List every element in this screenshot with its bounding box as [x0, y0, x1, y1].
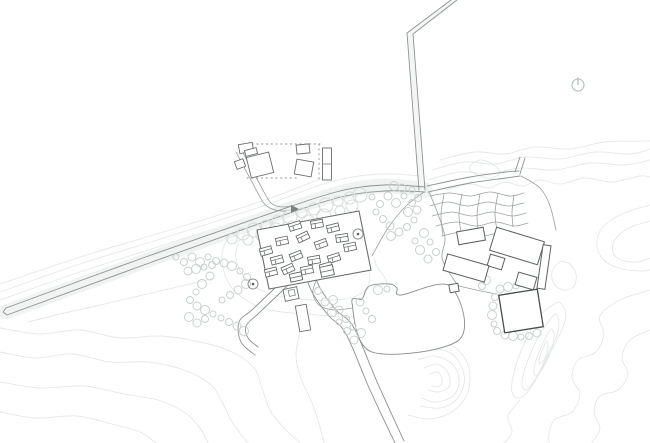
contour-line: [445, 176, 650, 190]
terrace-line: [495, 193, 498, 231]
entrance-structures: [283, 287, 311, 332]
tree-icon: [193, 289, 199, 295]
tree-icon: [188, 253, 196, 261]
contour-line: [592, 330, 650, 443]
tree-icon: [196, 258, 205, 267]
cluster-building-outline: [246, 152, 273, 178]
tree-icon: [533, 329, 541, 337]
plaza-tree-marker-dot: [252, 283, 255, 286]
plaza-annex-building: [320, 265, 335, 277]
tree-icon: [210, 311, 216, 317]
complex-building: [449, 283, 459, 292]
tree-icon: [315, 288, 322, 295]
tree-icon: [321, 298, 329, 306]
tree-icon: [350, 336, 358, 344]
tree-icon: [433, 249, 440, 256]
tree-icon: [213, 258, 220, 265]
tree-icon: [404, 208, 413, 217]
tree-icon: [420, 229, 429, 238]
tree-icon: [209, 262, 216, 269]
contour-line: [0, 352, 248, 443]
cluster-building-outline: [294, 159, 313, 177]
tree-icon: [509, 332, 518, 341]
contour-line: [612, 221, 650, 262]
footpath: [372, 192, 424, 256]
footpath: [521, 176, 556, 230]
complex-building-outline: [449, 283, 459, 292]
cluster-building-outline: [296, 144, 310, 154]
cluster-building: [246, 152, 273, 178]
contour-line: [404, 342, 470, 419]
tree-icon: [518, 334, 524, 340]
contour-layer: [0, 141, 650, 443]
tree-icon: [386, 222, 394, 230]
terrace-line: [512, 195, 514, 227]
contour-line: [432, 149, 650, 170]
tree-icon: [218, 315, 224, 321]
tree-icon: [220, 259, 228, 267]
entrance-kiosk-outline: [283, 287, 299, 302]
complex-building: [443, 254, 489, 282]
tree-icon: [192, 265, 201, 274]
complex-building-outline: [487, 254, 505, 270]
contour-line: [424, 364, 450, 392]
tree-icon: [369, 194, 375, 200]
contour-line: [418, 356, 459, 402]
tree-icon: [496, 285, 504, 293]
contour-line: [548, 290, 650, 443]
pavilion-building: [310, 219, 323, 228]
cluster-building: [296, 144, 310, 154]
tree-icon: [412, 238, 418, 244]
site-plan: [0, 0, 650, 443]
contour-line: [0, 412, 156, 443]
terrace-line: [436, 222, 528, 226]
tree-icon: [240, 327, 249, 336]
tree-icon: [187, 297, 194, 304]
contour-line: [469, 160, 500, 178]
tree-icon: [395, 228, 403, 236]
contour-line: [504, 400, 520, 443]
contour-line: [534, 329, 554, 376]
road-band-layer: [6, 0, 454, 312]
tree-icon: [427, 239, 433, 245]
road-layer: [3, 0, 525, 443]
road-edge: [515, 157, 520, 172]
tree-icon: [494, 328, 501, 335]
tree-icon: [202, 316, 209, 323]
north-building-cluster: [234, 142, 331, 180]
bus-shelter-outline: [295, 304, 310, 332]
tree-icon: [193, 319, 201, 327]
courtyard-building: [499, 289, 543, 333]
tree-icon: [392, 199, 401, 208]
terrace-line: [430, 202, 524, 206]
complex-building-outline: [443, 254, 489, 282]
site-plan-canvas: [0, 0, 650, 443]
entrance-kiosk: [283, 287, 299, 302]
contour-line: [552, 261, 577, 290]
tree-icon: [205, 254, 211, 260]
contour-line: [430, 372, 442, 387]
tree-icon: [380, 216, 387, 223]
cluster-building: [294, 159, 313, 177]
pavilion-building: [307, 255, 320, 264]
cluster-building: [323, 148, 332, 180]
tree-icon: [491, 321, 497, 327]
tree-icon: [201, 306, 210, 315]
tree-icon: [336, 319, 342, 325]
pavilion-building: [336, 233, 349, 242]
north-indicator: [572, 78, 584, 92]
tree-icon: [185, 313, 194, 322]
tree-icon: [416, 246, 425, 255]
tree-icon: [193, 302, 201, 310]
tree-icon: [234, 286, 242, 294]
contour-line: [0, 382, 208, 443]
contour-line: [440, 141, 650, 160]
tree-icon: [413, 206, 421, 214]
tree-icon: [181, 259, 188, 266]
tree-icon: [227, 292, 234, 299]
tree-icon: [504, 283, 513, 292]
tree-icon: [387, 232, 396, 241]
tree-icon: [488, 311, 497, 320]
tree-icon: [404, 224, 411, 231]
tree-icon: [219, 297, 225, 303]
tree-icon: [424, 255, 432, 263]
contour-line: [428, 160, 650, 180]
road-edge: [520, 158, 525, 174]
courtyard-building-outline: [499, 289, 543, 333]
tree-icon: [373, 209, 379, 215]
contour-line: [296, 332, 324, 443]
tree-icon: [492, 294, 499, 301]
tree-icon: [184, 267, 192, 275]
bus-shelter: [295, 304, 310, 332]
tree-icon: [228, 262, 237, 271]
bush-icon: [346, 200, 358, 212]
tree-icon: [479, 283, 486, 290]
tree-icon: [226, 319, 233, 326]
tree-icon: [377, 201, 384, 208]
footpath: [459, 286, 496, 294]
plaza-tree-marker-dot: [357, 233, 360, 236]
tree-icon: [489, 302, 497, 310]
complex-building: [487, 254, 505, 270]
tree-icon: [411, 217, 417, 223]
